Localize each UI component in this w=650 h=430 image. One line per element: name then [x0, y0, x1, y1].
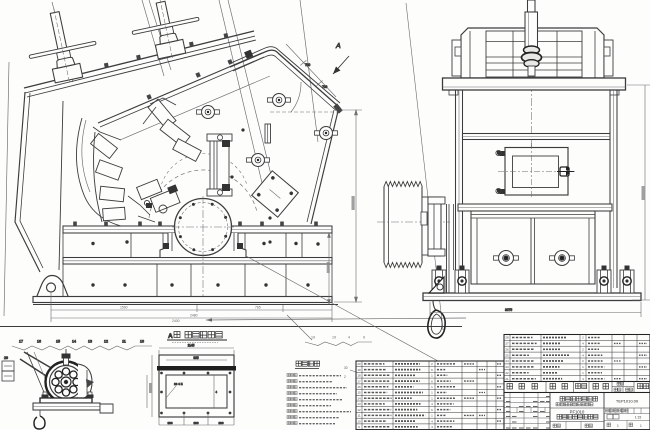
svg-text:1145: 1145 — [188, 344, 195, 348]
svg-text:15: 15 — [357, 391, 361, 395]
svg-text:TEP1010.00: TEP1010.00 — [616, 399, 639, 404]
svg-text:390: 390 — [218, 421, 223, 425]
svg-text:19: 19 — [311, 336, 315, 340]
svg-text:700: 700 — [305, 63, 311, 67]
svg-text:14: 14 — [72, 340, 76, 344]
svg-text:15: 15 — [56, 340, 60, 344]
svg-text:16: 16 — [37, 340, 41, 344]
svg-text:29: 29 — [4, 356, 8, 360]
svg-text:20: 20 — [357, 362, 361, 366]
svg-text:19: 19 — [357, 368, 361, 372]
svg-text:27: 27 — [505, 342, 509, 346]
svg-text:12: 12 — [104, 340, 108, 344]
svg-text:26: 26 — [505, 348, 509, 352]
svg-text:1:15: 1:15 — [635, 416, 642, 420]
svg-text:30: 30 — [344, 366, 348, 370]
svg-text:18: 18 — [357, 374, 361, 378]
svg-text:390: 390 — [167, 421, 172, 425]
svg-text:PF1010: PF1010 — [570, 410, 585, 415]
svg-text:1590: 1590 — [120, 306, 128, 310]
svg-text:16: 16 — [357, 385, 361, 389]
svg-text:23: 23 — [505, 365, 509, 369]
svg-text:4: 4 — [348, 336, 350, 340]
svg-text:11: 11 — [357, 414, 360, 418]
svg-text:390: 390 — [193, 421, 198, 425]
svg-text:21: 21 — [505, 377, 509, 381]
svg-text:9: 9 — [363, 336, 365, 340]
svg-text:765: 765 — [255, 306, 261, 310]
svg-text:3075: 3075 — [505, 308, 512, 312]
svg-text:2400: 2400 — [172, 319, 180, 323]
svg-text:19 4 E: 19 4 E — [174, 382, 183, 386]
svg-text:17: 17 — [357, 379, 361, 383]
svg-text:19: 19 — [332, 336, 336, 340]
svg-text:22: 22 — [505, 371, 509, 375]
svg-text:1: 1 — [617, 424, 619, 428]
svg-text:25: 25 — [505, 353, 509, 357]
svg-text:17: 17 — [19, 340, 23, 344]
svg-text:2: 2 — [344, 375, 346, 379]
svg-text:24: 24 — [505, 359, 509, 363]
svg-text:13: 13 — [357, 402, 361, 406]
svg-text:A: A — [335, 43, 341, 50]
svg-text:14: 14 — [357, 396, 361, 400]
svg-text:12: 12 — [357, 408, 361, 412]
svg-text:10: 10 — [140, 340, 144, 344]
svg-text:995: 995 — [193, 356, 199, 360]
svg-text:10: 10 — [357, 419, 361, 423]
svg-text:1: 1 — [640, 424, 642, 428]
svg-text:28: 28 — [505, 336, 509, 340]
svg-text:11: 11 — [122, 340, 126, 344]
svg-text:A: A — [168, 333, 173, 340]
svg-text:2480: 2480 — [190, 314, 198, 318]
svg-text:700: 700 — [322, 85, 328, 89]
svg-text:13: 13 — [88, 340, 92, 344]
